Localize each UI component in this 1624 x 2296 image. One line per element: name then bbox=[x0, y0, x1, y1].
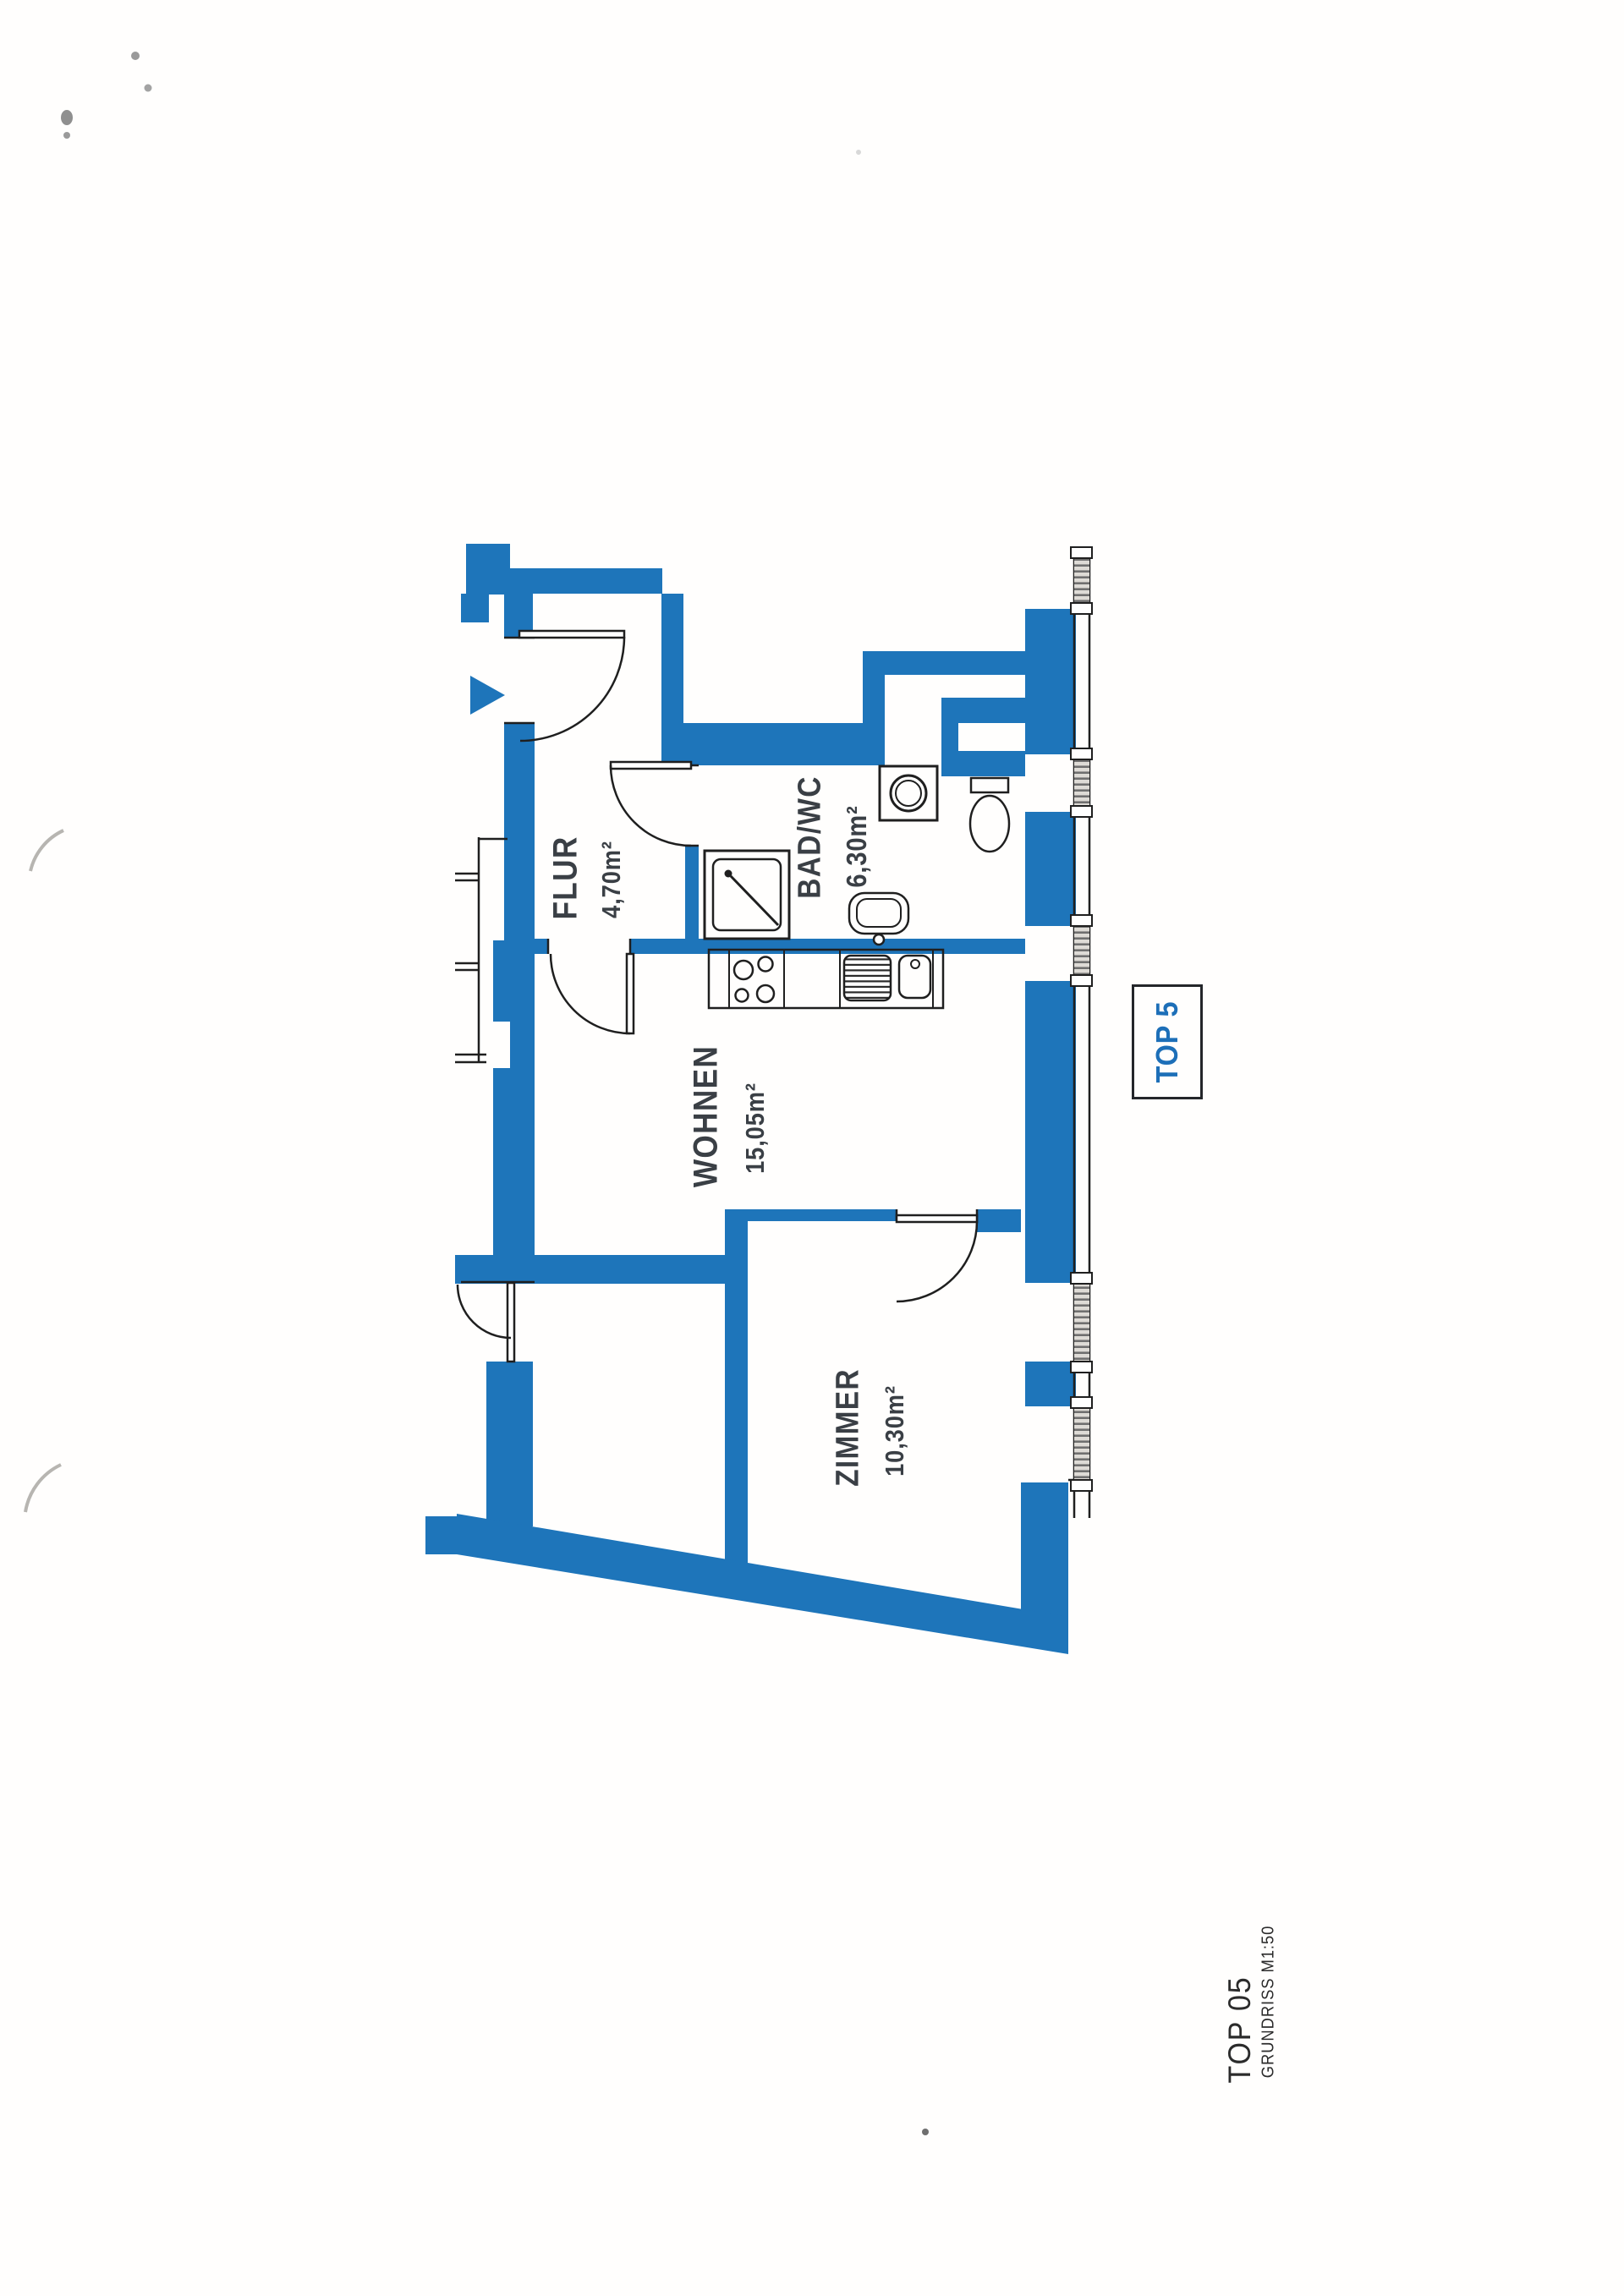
scanned-floorplan-page: FLUR 4,70m² BAD/WC 6,30m² WOHNEN 15,05m²… bbox=[0, 0, 1624, 2296]
living-room-door bbox=[548, 939, 634, 1033]
room-label-zimmer: ZIMMER bbox=[831, 1368, 867, 1487]
floor-plan-drawing bbox=[0, 0, 1624, 2296]
scan-artifacts bbox=[25, 52, 929, 2135]
room-door bbox=[897, 1209, 977, 1301]
toilet-icon bbox=[970, 778, 1009, 852]
room-area-badwc: 6,30m² bbox=[841, 805, 873, 887]
kitchen-sink-icon bbox=[844, 956, 930, 1000]
shower-icon bbox=[705, 851, 789, 939]
unit-badge-label: TOP 5 bbox=[1149, 1001, 1185, 1083]
room-label-wohnen: WOHNEN bbox=[688, 1045, 726, 1187]
unit-badge-box: TOP 5 bbox=[1132, 984, 1203, 1099]
neighbour-door bbox=[458, 1282, 535, 1362]
room-label-flur: FLUR bbox=[547, 836, 585, 919]
footer-scale-note: GRUNDRISS M1:50 bbox=[1259, 1926, 1279, 2078]
room-area-flur: 4,70m² bbox=[596, 841, 627, 918]
washing-machine-icon bbox=[880, 766, 937, 820]
room-area-zimmer: 10,30m² bbox=[880, 1385, 910, 1477]
footer-unit-title: TOP 05 bbox=[1222, 1975, 1258, 2083]
bath-door bbox=[611, 762, 699, 846]
scanner-arc-mark bbox=[25, 1465, 61, 1512]
stove-icon bbox=[734, 957, 774, 1003]
scanner-arc-mark bbox=[30, 830, 63, 871]
washbasin-icon bbox=[849, 893, 908, 945]
room-area-wohnen: 15,05m² bbox=[740, 1082, 771, 1174]
kitchen-counter bbox=[709, 950, 943, 1008]
entrance-arrow-icon bbox=[470, 676, 505, 715]
room-label-badwc: BAD/WC bbox=[793, 775, 829, 898]
